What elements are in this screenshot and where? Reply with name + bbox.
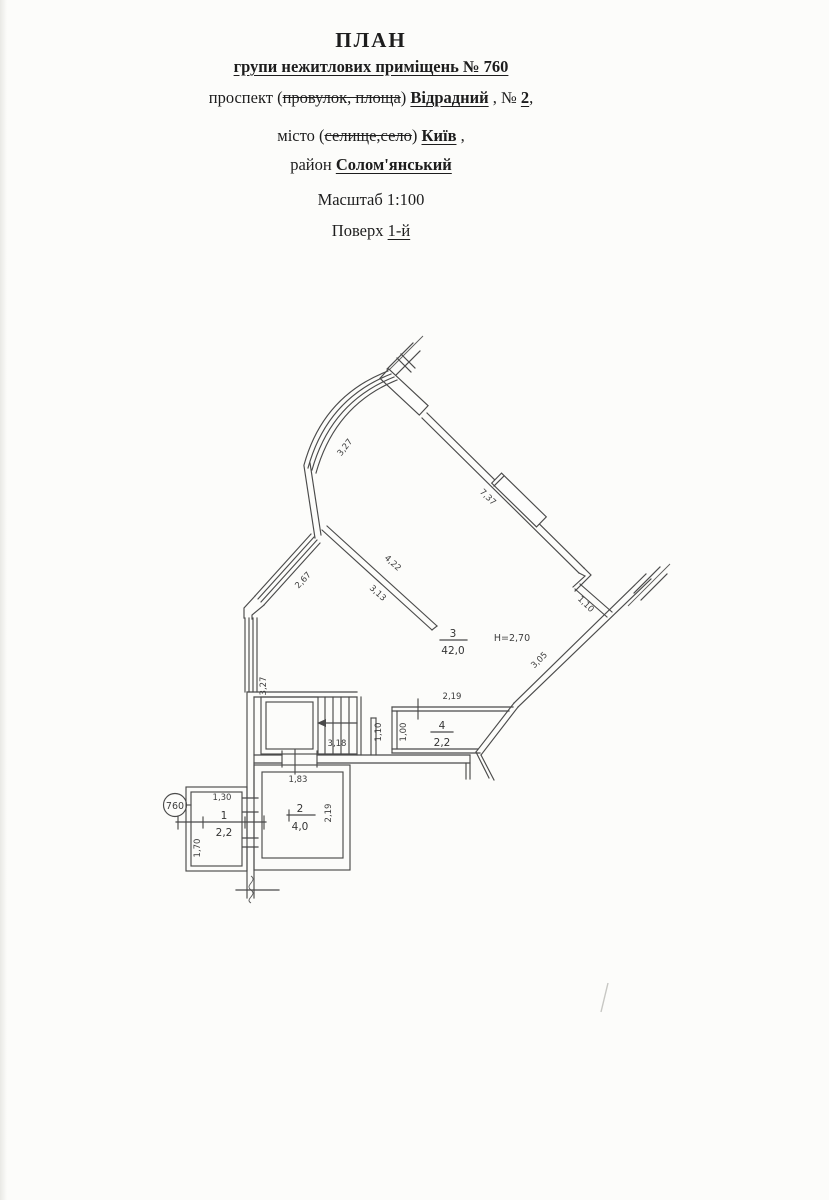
dim-partition-top: 4,22 bbox=[382, 553, 403, 573]
scanned-plan-sheet: ПЛАН групи нежитлових приміщень № 760 пр… bbox=[0, 0, 829, 1200]
stray-pen-mark bbox=[601, 983, 608, 1012]
unit-badge-number: 760 bbox=[166, 801, 184, 812]
dim-right-jog: 1,10 bbox=[575, 594, 596, 614]
dim-left-window: 2,67 bbox=[293, 570, 313, 591]
room-labels: 1 2,2 2 4,0 3 42,0 4 2,2 Н=2,70 bbox=[216, 628, 530, 839]
room4-number: 4 bbox=[439, 720, 446, 732]
dim-room2-right: 2,19 bbox=[324, 804, 334, 823]
room3-number: 3 bbox=[450, 628, 457, 640]
dim-right-wall: 3,05 bbox=[529, 650, 550, 670]
dim-room4-top: 2,19 bbox=[443, 692, 462, 702]
interior-partition bbox=[322, 526, 437, 630]
right-boundary-wall bbox=[476, 564, 670, 780]
room4-area: 2,2 bbox=[434, 737, 451, 749]
left-upper-wall bbox=[244, 463, 321, 619]
room3-area: 42,0 bbox=[441, 645, 464, 657]
left-window-band bbox=[245, 618, 257, 692]
room2-number: 2 bbox=[297, 803, 304, 815]
dim-wall-near-room4: 1,10 bbox=[374, 723, 384, 742]
dim-room4-left: 1,00 bbox=[399, 723, 409, 742]
window-top-right bbox=[492, 473, 547, 527]
room4-walls bbox=[392, 699, 513, 753]
dim-room1-top: 1,30 bbox=[213, 793, 232, 803]
unit-badge: 760 bbox=[164, 794, 192, 817]
dim-room1-left: 1,70 bbox=[193, 839, 203, 858]
dim-left-wall-vertical: 3,27 bbox=[259, 677, 269, 696]
curved-window-band bbox=[304, 371, 397, 473]
room1-area: 2,2 bbox=[216, 827, 233, 839]
dim-arc-window: 3,27 bbox=[336, 437, 356, 458]
room2-area: 4,0 bbox=[292, 821, 309, 833]
floor-plan-drawing: 760 1 2,2 2 4,0 3 42,0 4 2,2 Н=2,70 bbox=[0, 0, 829, 1200]
room1-number: 1 bbox=[221, 810, 228, 822]
ceiling-height-note: Н=2,70 bbox=[494, 633, 530, 644]
dim-opening: 1,83 bbox=[289, 775, 308, 785]
dim-stairs: 3,18 bbox=[328, 739, 347, 749]
